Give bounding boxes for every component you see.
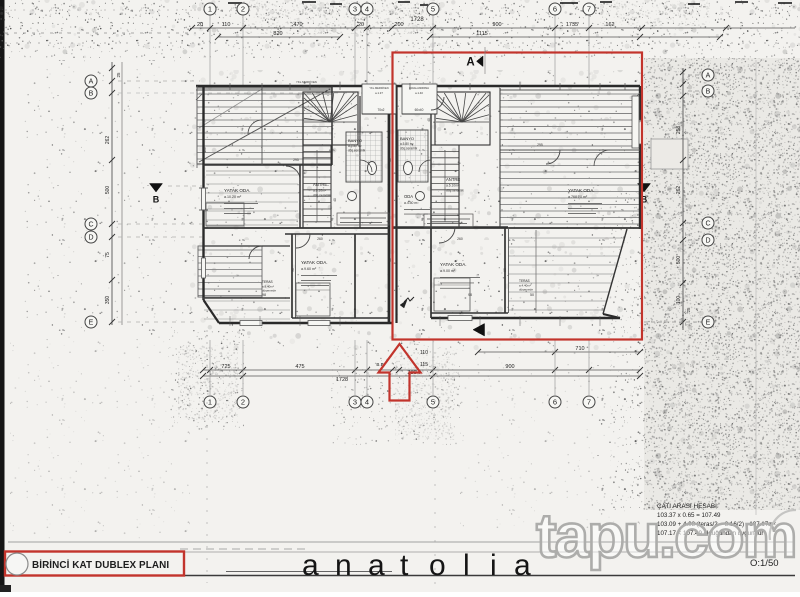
svg-text:98: 98 (262, 293, 266, 297)
svg-text:t: t (400, 549, 409, 582)
svg-text:262: 262 (105, 136, 111, 145)
svg-text:C: C (705, 221, 710, 228)
svg-text:E: E (89, 320, 94, 327)
svg-text:a: a (514, 549, 531, 582)
svg-text:a.1.37: a.1.37 (375, 91, 383, 95)
svg-text:döş.seramik: döş.seramik (446, 189, 464, 193)
svg-text:20: 20 (197, 22, 203, 28)
svg-text:90: 90 (503, 268, 507, 272)
svg-text:260: 260 (457, 237, 463, 241)
svg-text:a.6.10m²: a.6.10m² (446, 184, 460, 188)
svg-text:470: 470 (293, 22, 302, 28)
svg-text:1735: 1735 (566, 22, 578, 28)
svg-text:295: 295 (537, 143, 543, 147)
svg-text:n: n (335, 549, 352, 582)
svg-text:25: 25 (116, 72, 121, 78)
svg-text:262: 262 (676, 186, 682, 195)
svg-text:115: 115 (420, 362, 428, 368)
svg-text:5: 5 (431, 5, 435, 14)
svg-text:7: 7 (587, 398, 591, 407)
svg-text:a.10.20 m²: a.10.20 m² (224, 195, 242, 199)
svg-text:a.768.20 m²: a.768.20 m² (568, 195, 588, 199)
svg-text:500: 500 (105, 186, 111, 195)
svg-text:o: o (429, 549, 446, 582)
svg-text:TERAS: TERAS (519, 279, 530, 283)
svg-text:900: 900 (505, 364, 514, 370)
svg-text:20: 20 (358, 22, 364, 28)
svg-text:2: 2 (241, 5, 245, 14)
svg-text:BANYO: BANYO (348, 138, 362, 143)
svg-text:475: 475 (295, 364, 304, 370)
svg-text:döş.seramik: döş.seramik (313, 194, 331, 198)
svg-text:4: 4 (365, 398, 369, 407)
svg-text:40: 40 (333, 198, 337, 202)
svg-text:820: 820 (273, 31, 282, 37)
svg-text:3: 3 (353, 5, 357, 14)
svg-text:6: 6 (553, 5, 557, 14)
svg-text:ODA: ODA (404, 194, 413, 199)
svg-text:5: 5 (431, 398, 435, 407)
svg-text:a.1.40: a.1.40 (415, 91, 423, 95)
svg-text:a: a (368, 549, 385, 582)
svg-text:D: D (88, 235, 93, 242)
svg-text:A: A (466, 57, 474, 69)
svg-text:50: 50 (530, 293, 534, 297)
svg-text:350: 350 (105, 296, 111, 305)
svg-text:1728: 1728 (410, 17, 424, 23)
svg-text:ANTRE: ANTRE (446, 177, 460, 182)
svg-text:90: 90 (291, 268, 295, 272)
svg-text:a.5.80 m²: a.5.80 m² (348, 144, 361, 148)
svg-text:BANYO: BANYO (400, 136, 414, 141)
svg-text:710: 710 (575, 346, 584, 352)
svg-text:110: 110 (222, 22, 231, 28)
svg-text:7: 7 (587, 5, 591, 14)
svg-text:ANTRE: ANTRE (313, 182, 327, 187)
svg-text:162: 162 (605, 22, 614, 28)
svg-text:900: 900 (492, 22, 501, 28)
svg-text:E: E (706, 320, 711, 327)
svg-text:60x40: 60x40 (415, 108, 424, 112)
svg-text:2: 2 (241, 398, 245, 407)
svg-text:YATAK ODA.: YATAK ODA. (568, 188, 595, 193)
svg-text:100: 100 (676, 296, 682, 305)
svg-text:a.6.10m²: a.6.10m² (313, 189, 327, 193)
svg-text:YATAK ODA.: YATAK ODA. (224, 188, 251, 193)
svg-text:döş.seramik: döş.seramik (400, 147, 418, 151)
svg-text:75: 75 (105, 252, 111, 258)
svg-text:i: i (490, 549, 497, 582)
svg-text:A: A (89, 79, 94, 86)
svg-text:3: 3 (353, 398, 357, 407)
svg-text:a.5.80 m²: a.5.80 m² (400, 142, 413, 146)
svg-text:725: 725 (221, 364, 230, 370)
svg-text:a: a (302, 549, 319, 582)
svg-text:döşemede: döşemede (519, 288, 533, 292)
svg-text:B: B (153, 195, 160, 205)
svg-text:90: 90 (388, 258, 392, 262)
svg-text:1115: 1115 (476, 31, 487, 37)
svg-text:1728: 1728 (336, 377, 348, 383)
svg-text:1: 1 (208, 5, 212, 14)
svg-text:döş.seramik: döş.seramik (348, 149, 366, 153)
svg-text:D: D (705, 238, 710, 245)
svg-text:90: 90 (388, 158, 392, 162)
svg-text:YATAK ODA.: YATAK ODA. (440, 262, 467, 267)
svg-text:260: 260 (317, 237, 323, 241)
svg-text:C: C (88, 222, 93, 229)
svg-text:B: B (89, 91, 94, 98)
svg-text:YKL.MERDİVEN: YKL.MERDİVEN (296, 79, 317, 84)
svg-text:a.4.50 m²: a.4.50 m² (404, 201, 419, 205)
svg-text:40: 40 (427, 118, 431, 122)
svg-text:258: 258 (676, 126, 682, 135)
svg-text:295: 295 (293, 158, 299, 162)
svg-text:25: 25 (686, 307, 691, 313)
svg-text:BİRİNCİ KAT DUBLEX PLANI: BİRİNCİ KAT DUBLEX PLANI (32, 560, 169, 571)
svg-text:a.9.60 m²: a.9.60 m² (301, 267, 317, 271)
svg-text:a.9.00 m²: a.9.00 m² (440, 269, 456, 273)
svg-text:döşemede: döşemede (262, 289, 276, 293)
svg-text:TERAS: TERAS (262, 280, 273, 284)
svg-text:B: B (706, 89, 711, 96)
svg-text:YATAK ODA.: YATAK ODA. (301, 260, 328, 265)
svg-text:A: A (706, 73, 711, 80)
svg-text:tapu.com: tapu.com (536, 502, 796, 571)
svg-text:HAVALANDIRMA: HAVALANDIRMA (409, 86, 429, 90)
svg-text:4: 4 (365, 5, 369, 14)
svg-text:1: 1 (208, 398, 212, 407)
svg-text:160: 160 (203, 147, 207, 153)
svg-text:110: 110 (420, 350, 428, 356)
svg-text:200: 200 (394, 22, 403, 28)
svg-text:6: 6 (553, 398, 557, 407)
svg-text:500: 500 (676, 256, 682, 265)
svg-text:l: l (463, 549, 470, 582)
svg-text:70x2: 70x2 (378, 108, 385, 112)
